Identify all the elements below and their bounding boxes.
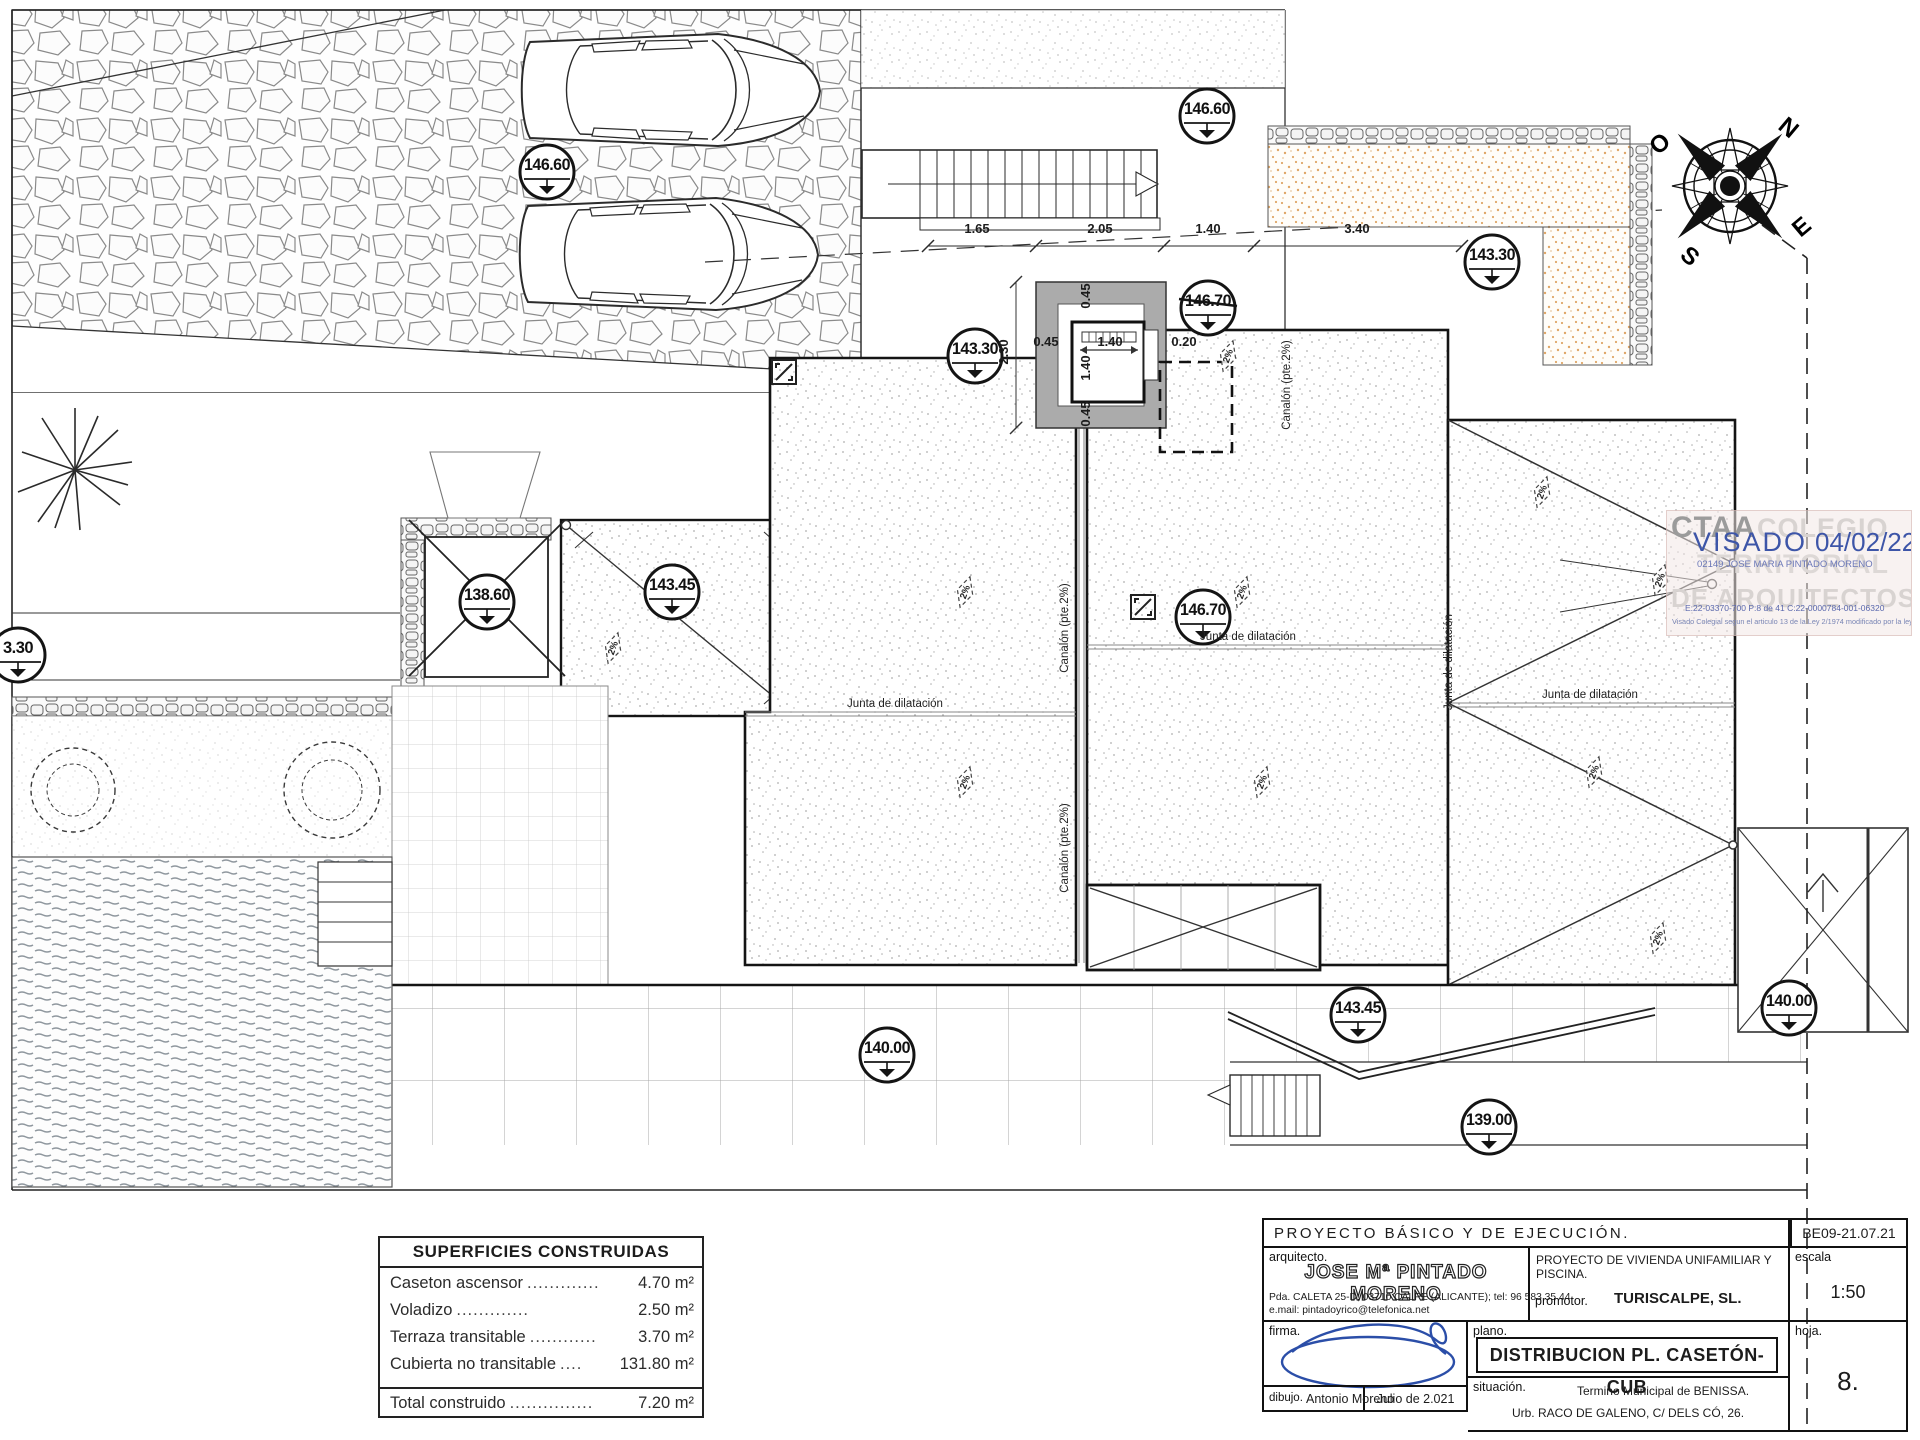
elevation-marker: 143.30: [948, 329, 1002, 383]
areas-table-row: Terraza transitable............3.70 m²: [390, 1328, 694, 1355]
areas-table: SUPERFICIES CONSTRUIDAS Caseton ascensor…: [378, 1236, 704, 1418]
revision-ref: BE09-21.07.21: [1790, 1218, 1908, 1248]
dibujo-label: dibujo.: [1269, 1392, 1303, 1404]
proyecto-desc: PROYECTO DE VIVIENDA UNIFAMILIAR Y PISCI…: [1536, 1253, 1786, 1281]
svg-text:143.30: 143.30: [1469, 246, 1515, 264]
dimension-text: 1.40: [1078, 355, 1093, 380]
annotation-label: Canalón (pte.2%): [1059, 583, 1071, 673]
parking-area: [12, 10, 861, 392]
promotor-name: TURISCALPE, SL.: [1614, 1290, 1742, 1307]
areas-table-title: SUPERFICIES CONSTRUIDAS: [380, 1238, 702, 1268]
areas-table-rows: Caseton ascensor.............4.70 m²Vola…: [380, 1268, 702, 1382]
annotation-label: Junta de dilatación: [847, 698, 943, 710]
elevation-marker: 143.45: [1331, 988, 1385, 1042]
total-dots: ...............: [506, 1394, 638, 1413]
architectural-plan-sheet: N O E S 146.60146.60143.30146.70143.303.…: [0, 0, 1920, 1440]
elevation-marker: 146.60: [1180, 89, 1234, 143]
annotation-label: Junta de dilatación: [1542, 689, 1638, 701]
hoja-label: hoja.: [1795, 1324, 1822, 1338]
dimension-text: 2.05: [1087, 221, 1112, 236]
annotation-label: Canalón (pte.2%): [1281, 340, 1293, 430]
situacion-label: situación.: [1473, 1380, 1526, 1394]
areas-table-total: Total construido ............... 7.20 m²: [380, 1387, 702, 1421]
svg-text:140.00: 140.00: [864, 1039, 910, 1057]
situacion-line2: Urb. RACO DE GALENO, C/ DELS CÓ, 26.: [1468, 1406, 1788, 1420]
arquitecto-address: Pda. CALETA 25-D; 03710 CALPE (ALICANTE)…: [1269, 1292, 1573, 1303]
fecha: Julio de 2.021: [1365, 1385, 1468, 1412]
elevation-marker: 140.00: [1762, 981, 1816, 1035]
visado-stamp: CTAA COLEGIO TERRITORIAL DE ARQUITECTOS …: [1666, 510, 1912, 636]
dimension-text: 2.30: [996, 339, 1011, 364]
stamp-codes: E:22-03370-700 P:8 de 41 C:22-0000784-00…: [1685, 603, 1884, 613]
areas-table-row: Caseton ascensor.............4.70 m²: [390, 1274, 694, 1301]
elevation-marker: 146.60: [520, 145, 574, 199]
agave-plant-icon: [18, 408, 132, 530]
compass-rose-icon: N O E S: [1644, 112, 1816, 272]
elevation-marker: 140.00: [860, 1028, 914, 1082]
dimension-text: 1.65: [964, 221, 989, 236]
escala-value: 1:50: [1790, 1282, 1906, 1303]
pool-skylight: [1087, 885, 1320, 970]
dimension-text: 0.20: [1171, 334, 1196, 349]
svg-text:146.70: 146.70: [1180, 601, 1226, 619]
escala-label: escala: [1795, 1250, 1831, 1264]
annotation-label: Junta de dilatación: [1443, 614, 1455, 710]
dimension-line: [922, 240, 1468, 252]
arquitecto-email: e.mail: pintadoyrico@telefonica.net: [1269, 1305, 1429, 1316]
title-block: PROYECTO BÁSICO Y DE EJECUCIÓN. BE09-21.…: [1262, 1218, 1908, 1432]
svg-text:143.30: 143.30: [952, 340, 998, 358]
hoja-value: 8.: [1790, 1366, 1906, 1397]
plano-title: DISTRIBUCION PL. CASETÓN-CUB: [1476, 1337, 1778, 1373]
dimension-text: 1.40: [1195, 221, 1220, 236]
svg-text:143.45: 143.45: [1335, 999, 1381, 1017]
promotor-label: promotor.: [1535, 1294, 1588, 1308]
annotation-label: Canalón (pte.2%): [1059, 803, 1071, 893]
dimension-text: 3.40: [1344, 221, 1369, 236]
dimension-text: 1.40: [1097, 334, 1122, 349]
svg-text:146.60: 146.60: [524, 156, 570, 174]
stamp-architect: 02149 JOSE MARIA PINTADO MORENO: [1697, 559, 1873, 570]
stamp-visado: VISADO: [1693, 527, 1807, 558]
dimension-text: 0.45: [1078, 401, 1093, 426]
svg-text:138.60: 138.60: [464, 586, 510, 604]
plano-label: plano.: [1473, 1324, 1507, 1338]
svg-text:3.30: 3.30: [3, 639, 33, 657]
compass-s: S: [1675, 241, 1705, 272]
left-terrain: [12, 408, 420, 856]
stamp-legal: Visado Colegial segun el articulo 13 de …: [1672, 617, 1912, 626]
roof-main: [745, 330, 1737, 985]
total-value: 7.20 m²: [638, 1394, 694, 1413]
situacion-line1: Termino Municipal de BENISSA.: [1538, 1384, 1788, 1398]
svg-text:146.60: 146.60: [1184, 100, 1230, 118]
project-header: PROYECTO BÁSICO Y DE EJECUCIÓN.: [1262, 1218, 1790, 1248]
compass-e: E: [1787, 212, 1817, 243]
elevation-marker: 3.30: [0, 628, 45, 682]
svg-text:140.00: 140.00: [1766, 992, 1812, 1010]
elevation-marker: 146.70: [1179, 281, 1237, 335]
total-label: Total construido: [390, 1394, 506, 1413]
annotation-label: Junta de dilatación: [1200, 631, 1296, 643]
areas-table-row: Cubierta no transitable....131.80 m²: [390, 1355, 694, 1382]
stamp-date: 04/02/22: [1815, 527, 1912, 558]
svg-text:143.45: 143.45: [649, 576, 695, 594]
elevation-marker: 143.45: [645, 565, 699, 619]
firma-label: firma.: [1269, 1324, 1300, 1338]
dimension-text: 0.45: [1078, 283, 1093, 308]
pool: [12, 857, 392, 1187]
dimension-text: 0.45: [1033, 334, 1058, 349]
svg-text:139.00: 139.00: [1466, 1111, 1512, 1129]
elevation-marker: 139.00: [1462, 1100, 1516, 1154]
areas-table-row: Voladizo.............2.50 m²: [390, 1301, 694, 1328]
elevation-marker: 143.30: [1465, 235, 1519, 289]
